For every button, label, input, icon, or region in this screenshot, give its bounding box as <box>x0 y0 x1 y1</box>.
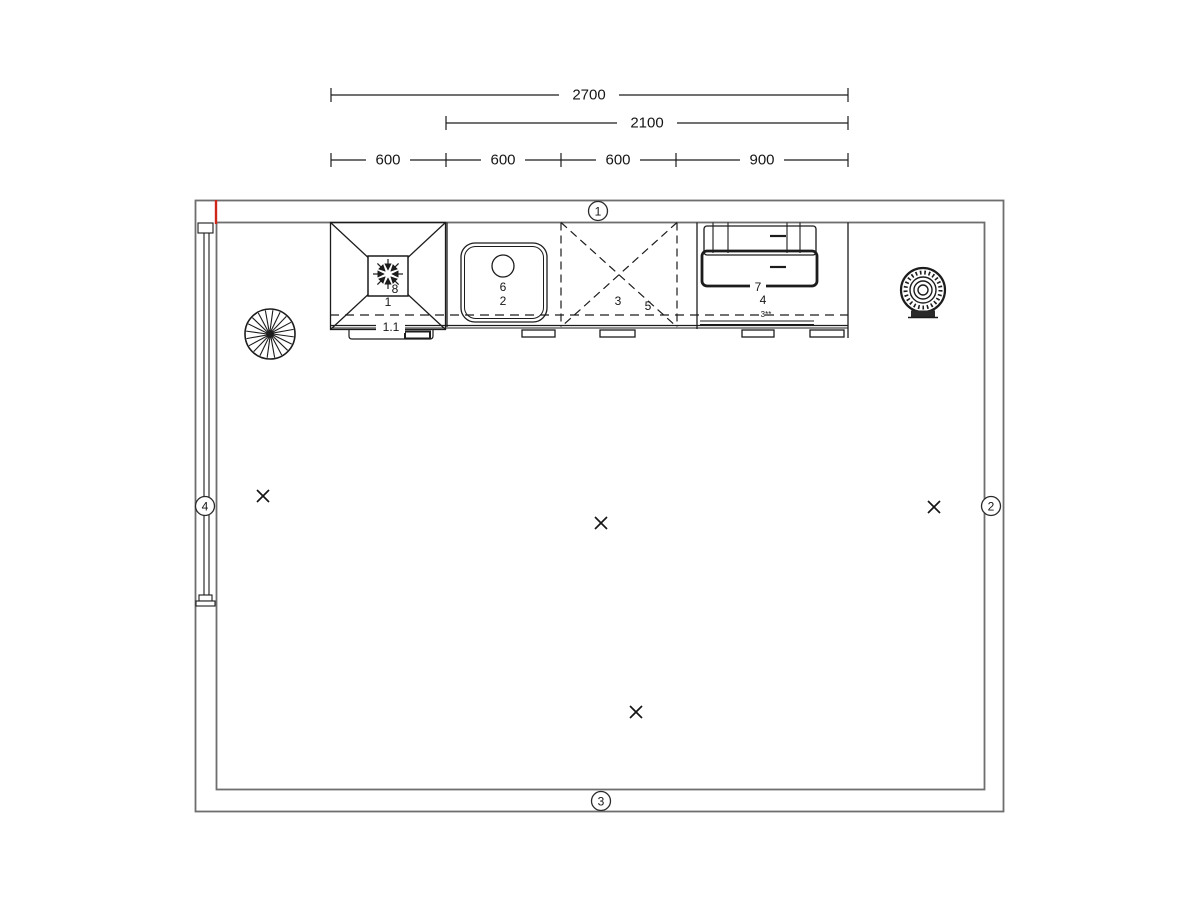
cross-mark <box>630 706 642 718</box>
cabinet-handle-icon <box>600 330 635 337</box>
dimension-label-seg2: 600 <box>490 152 515 169</box>
cross-mark <box>928 501 940 513</box>
cross-mark <box>595 517 607 529</box>
svg-text:1: 1 <box>595 205 602 219</box>
sink-drain-icon <box>492 255 514 277</box>
cross-marks <box>257 490 940 718</box>
plinth-handle-icon <box>405 332 430 339</box>
dimension-block: 2700 2100 600 600 600 900 <box>331 86 848 169</box>
dimension-line-segments: 600 600 600 900 <box>331 151 848 169</box>
boiler-base <box>911 311 935 318</box>
sink-unit-label: 2 <box>500 294 507 308</box>
hob-unit-label: 3 <box>615 294 622 308</box>
wall-marker-right: 2 <box>982 497 1001 516</box>
freezer-unit-label: 1 <box>385 295 392 309</box>
cabinet-handle-icon <box>522 330 555 337</box>
oven-unit: 7 4 3** <box>697 223 848 339</box>
hob-aux-label: 5 <box>645 299 652 313</box>
wall-marker-top: 1 <box>589 202 608 221</box>
svg-text:4: 4 <box>202 500 209 514</box>
wall-marker-left: 4 <box>196 497 215 516</box>
oven-drawer-label: 7 <box>755 280 762 294</box>
wall-marker-bottom: 3 <box>592 792 611 811</box>
oven-unit-label: 4 <box>760 293 767 307</box>
cabinet-handle-icon <box>810 330 844 337</box>
dimension-label-seg4: 900 <box>749 152 774 169</box>
dimension-label-2700: 2700 <box>572 87 605 104</box>
cabinet-handle-icon <box>742 330 774 337</box>
svg-text:2: 2 <box>988 500 995 514</box>
freezer-unit: 8 1 <box>331 223 446 330</box>
window-cap-top <box>198 223 213 233</box>
dimension-label-2100: 2100 <box>630 115 663 132</box>
plinth-label: 1.1 <box>383 320 400 334</box>
floorplan-drawing: 2700 2100 600 600 600 900 <box>0 0 1200 900</box>
window-cap-bottom <box>199 595 212 601</box>
cross-mark <box>257 490 269 502</box>
sink-fixture-label: 6 <box>500 280 507 294</box>
sink-unit: 6 2 <box>447 223 547 328</box>
floorplan-canvas: 2700 2100 600 600 600 900 <box>0 0 1200 900</box>
svg-text:3: 3 <box>598 795 605 809</box>
wall-markers: 1 2 3 4 <box>196 202 1001 811</box>
dimension-line-secondary: 2100 <box>446 114 848 132</box>
dimension-label-seg3: 600 <box>605 152 630 169</box>
dimension-label-seg1: 600 <box>375 152 400 169</box>
left-window <box>196 223 215 606</box>
freezer-symbol-label: 8 <box>392 282 399 296</box>
inner-wall-line <box>217 223 985 790</box>
hob-dashed-unit: 3 5 <box>561 223 677 328</box>
window-sill-bottom <box>196 601 215 606</box>
concentric-boiler-icon <box>901 268 945 318</box>
dimension-line-total: 2700 <box>331 86 848 104</box>
radial-fan-icon <box>245 309 295 359</box>
